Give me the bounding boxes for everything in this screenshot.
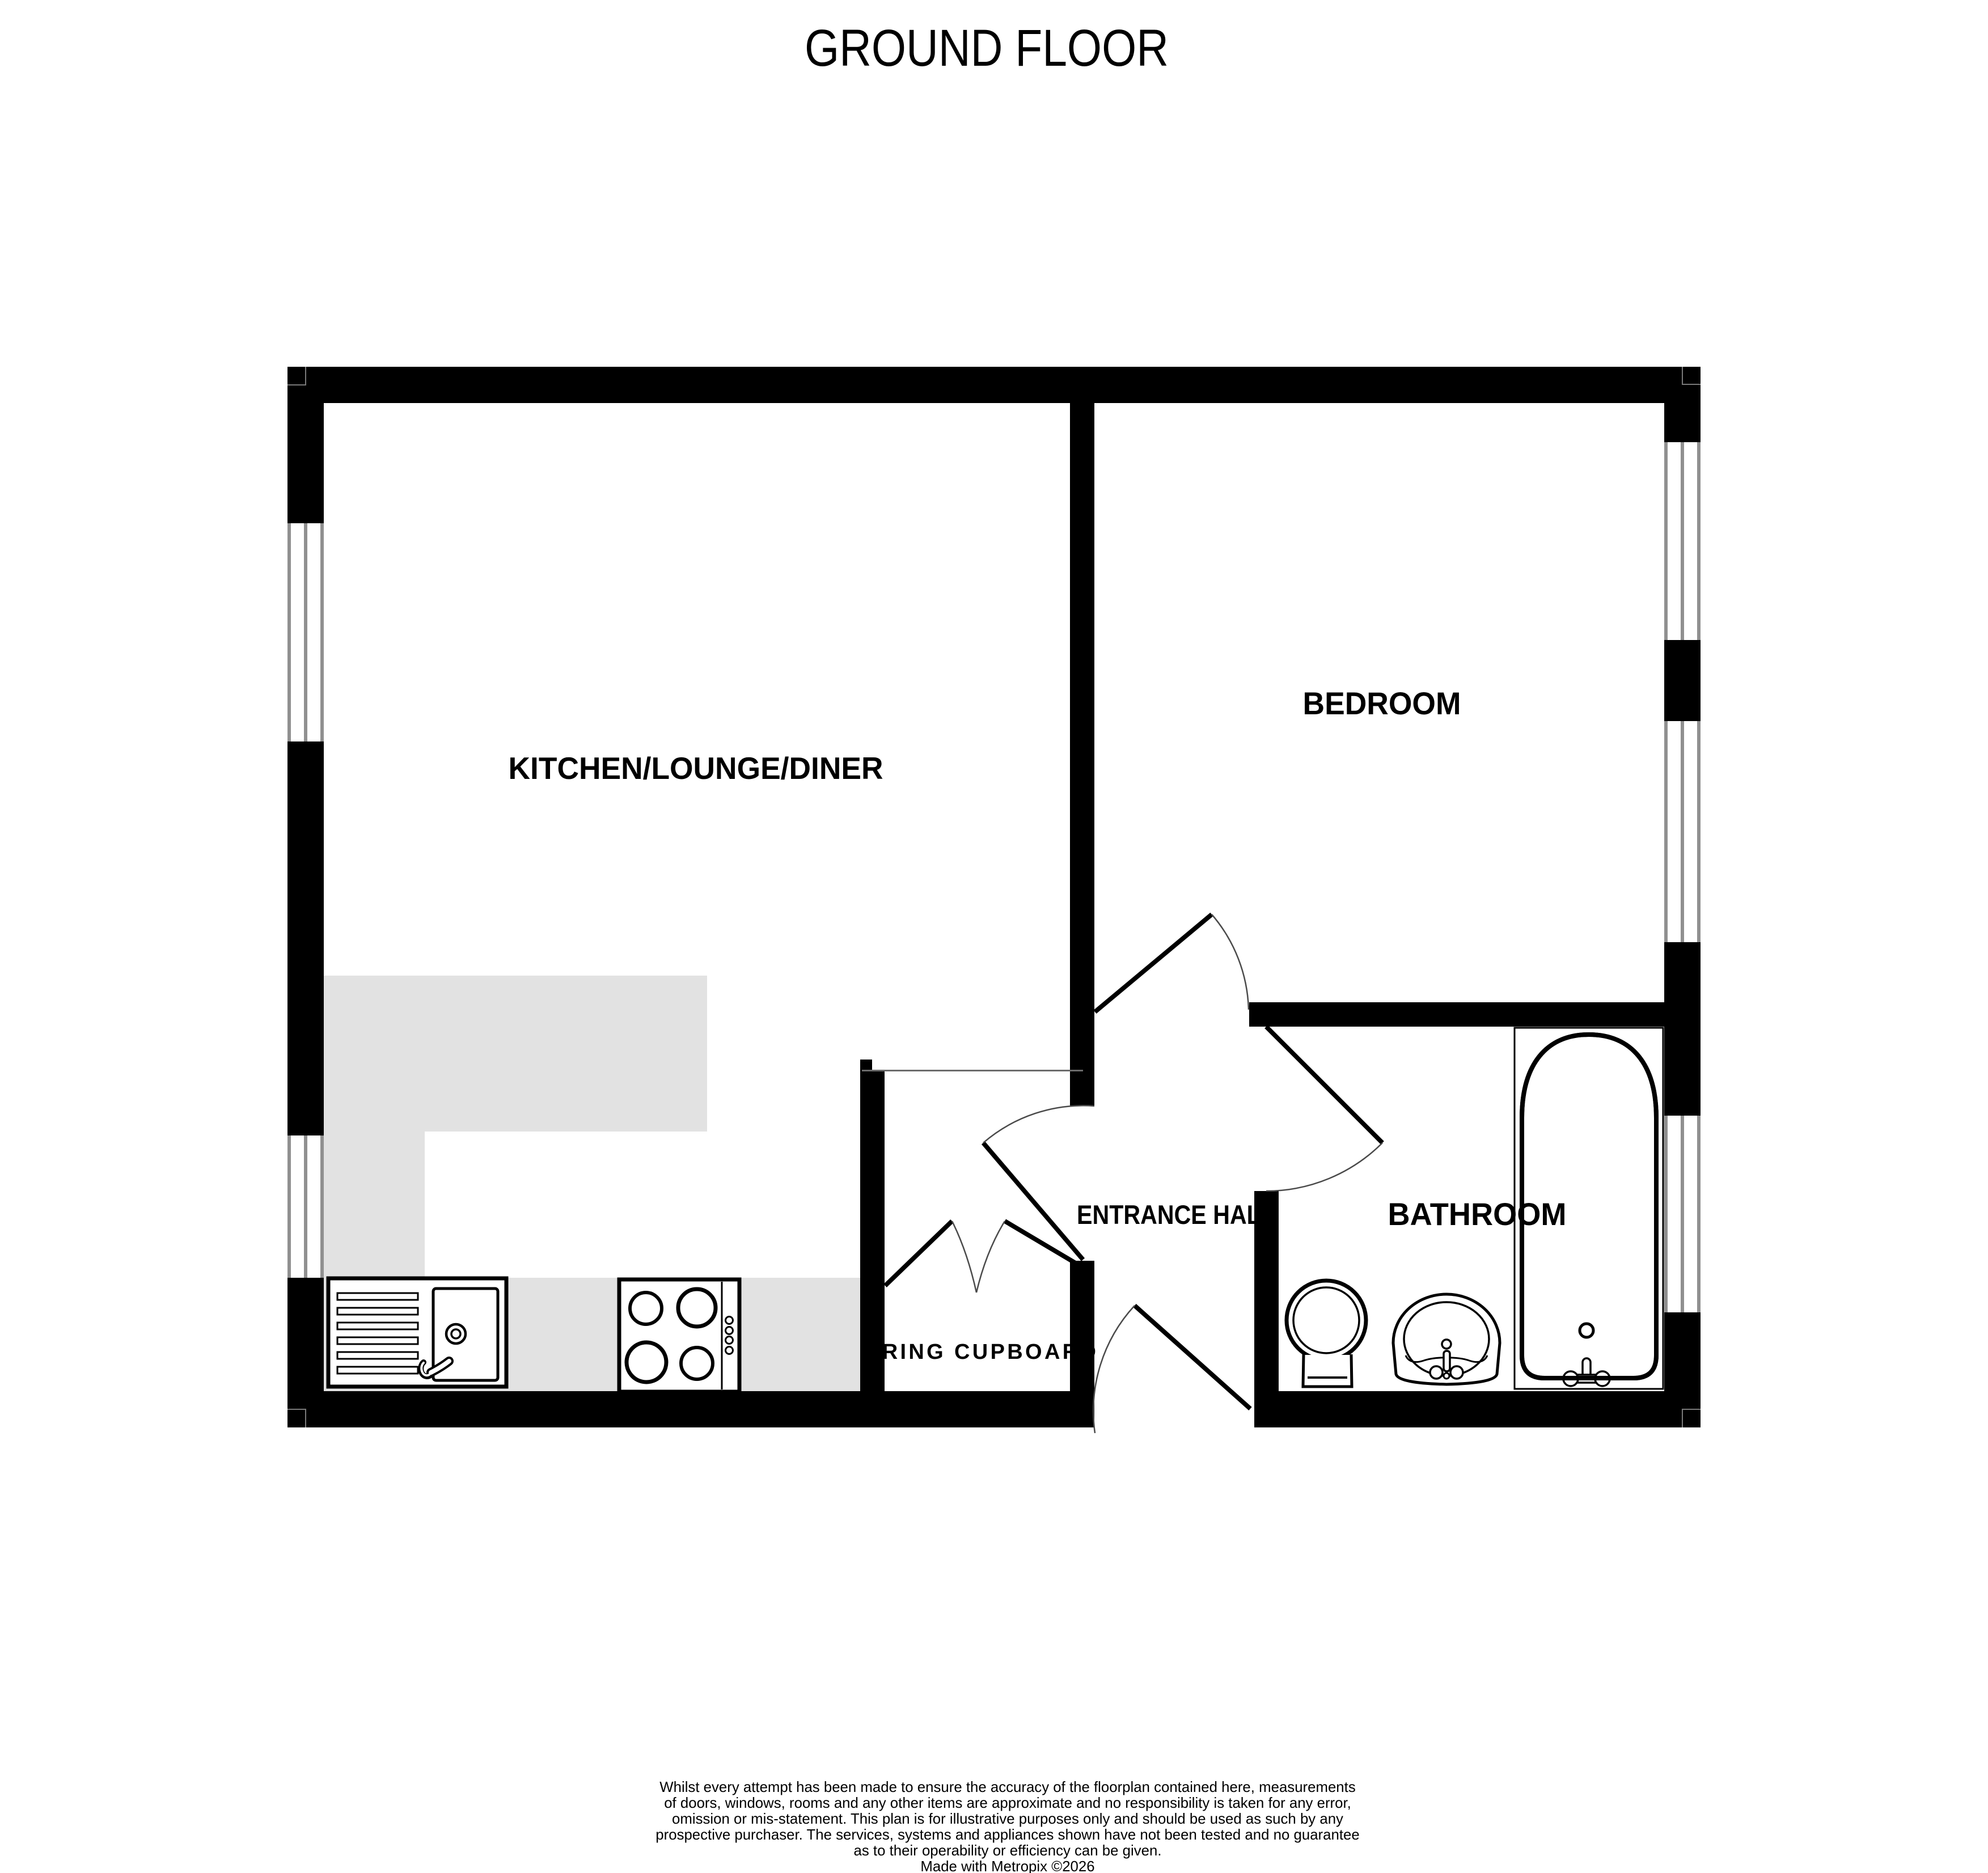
svg-text:BATHROOM: BATHROOM <box>1388 1196 1567 1232</box>
svg-text:AIRING CUPBOARD: AIRING CUPBOARD <box>856 1340 1096 1364</box>
svg-text:omission or mis-statement. Thi: omission or mis-statement. This plan is … <box>672 1811 1343 1827</box>
svg-text:Whilst every attempt has been: Whilst every attempt has been made to en… <box>659 1779 1355 1795</box>
svg-text:KITCHEN/LOUNGE/DINER: KITCHEN/LOUNGE/DINER <box>509 751 883 786</box>
svg-text:prospective purchaser. The ser: prospective purchaser. The services, sys… <box>655 1827 1359 1843</box>
svg-text:ENTRANCE HALL: ENTRANCE HALL <box>1077 1200 1275 1230</box>
svg-text:of doors, windows, rooms and a: of doors, windows, rooms and any other i… <box>664 1795 1351 1811</box>
svg-text:BEDROOM: BEDROOM <box>1303 685 1461 721</box>
svg-text:GROUND FLOOR: GROUND FLOOR <box>805 19 1169 77</box>
svg-text:as to their operability or eff: as to their operability or efficiency ca… <box>854 1843 1162 1859</box>
svg-text:Made with Metropix ©2026: Made with Metropix ©2026 <box>920 1859 1094 1873</box>
